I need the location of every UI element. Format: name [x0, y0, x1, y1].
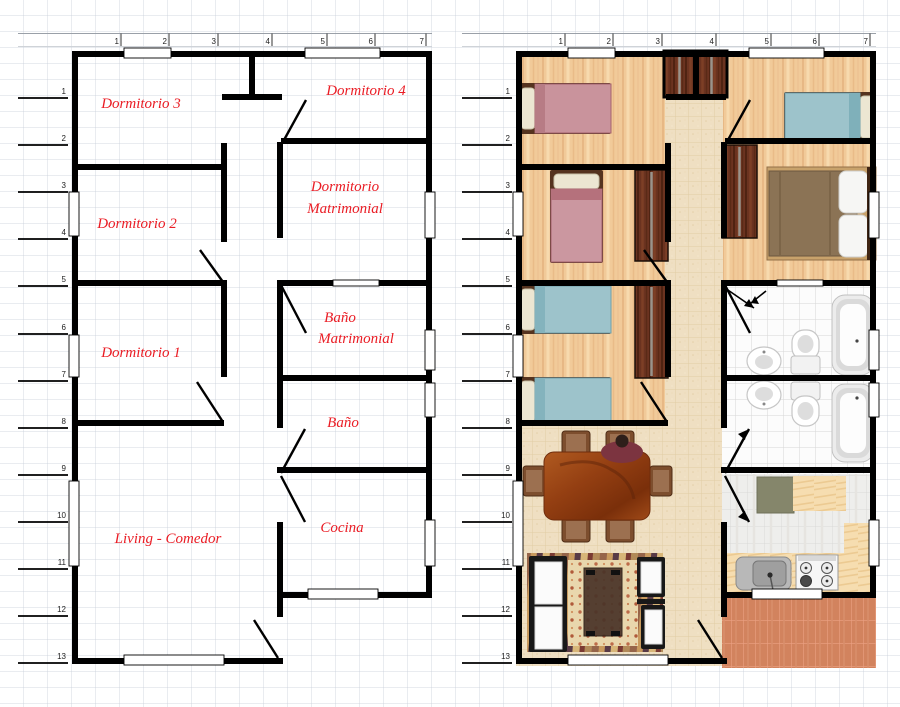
ruler-row-label: 7: [506, 370, 511, 379]
ruler-col-label: 2: [163, 37, 168, 46]
room-label-dormitorio-3: Dormitorio 3: [100, 96, 181, 112]
ruler-col-label: 1: [559, 37, 564, 46]
room-label-bano-matrimonial: Baño: [324, 310, 356, 326]
bathtub-icon: [832, 384, 874, 462]
window: [425, 520, 435, 566]
ruler-row-label: 9: [62, 464, 67, 473]
ruler-row-label: 1: [62, 87, 67, 96]
door-leaf: [197, 382, 223, 422]
door-leaf: [200, 250, 223, 282]
room-label-dormitorio-matrimonial: Matrimonial: [306, 201, 383, 217]
door-leaf: [282, 287, 306, 333]
ruler-row-label: 13: [57, 652, 66, 661]
ruler-col-label: 6: [369, 37, 374, 46]
ruler-row-label: 1: [506, 87, 511, 96]
ruler-col-label: 3: [212, 37, 217, 46]
wardrobe-icon: [722, 145, 757, 238]
ruler-row-label: 5: [62, 275, 67, 284]
ruler-row-label: 7: [62, 370, 67, 379]
ruler-row-label: 3: [506, 181, 511, 190]
kitchen-counter: [793, 476, 846, 511]
ruler-row-label: 11: [58, 558, 67, 567]
room-label-living-comedor: Living - Comedor: [114, 531, 222, 547]
door-leaf: [281, 476, 305, 522]
ruler-row-label: 5: [506, 275, 511, 284]
room-label-dormitorio-2: Dormitorio 2: [96, 216, 177, 232]
window: [69, 481, 79, 566]
ruler-col-label: 5: [765, 37, 770, 46]
left-plan-labels: Dormitorio 3 Dormitorio 4 Dormitorio 2 D…: [96, 83, 406, 547]
window: [69, 335, 79, 377]
single-bed-icon: [784, 92, 876, 143]
double-bed-icon: [767, 167, 876, 260]
wardrobe-icon: [635, 285, 668, 378]
wardrobe-icon: [635, 170, 668, 261]
ruler-row-label: 2: [506, 134, 511, 143]
hallway-tile-floor: [665, 97, 723, 427]
ruler-top-right-plan: 1 2 3 4 5 6 7: [462, 34, 876, 47]
ruler-row-label: 10: [501, 511, 510, 520]
ruler-col-label: 3: [656, 37, 661, 46]
ruler-row-label: 12: [57, 605, 66, 614]
ruler-col-label: 1: [115, 37, 120, 46]
ruler-top-left-plan: 1 2 3 4 5 6 7: [18, 34, 432, 47]
dining-chair-icon: [562, 431, 590, 455]
ruler-row-label: 3: [62, 181, 67, 190]
single-bed-icon: [518, 377, 611, 426]
room-label-bano: Baño: [327, 415, 359, 431]
bidet-icon: [747, 381, 781, 409]
ruler-row-label: 11: [502, 558, 511, 567]
ruler-row-label: 12: [501, 605, 510, 614]
dining-chair-icon: [523, 466, 545, 496]
room-label-dormitorio-1: Dormitorio 1: [100, 345, 181, 361]
patio-tiles: [722, 594, 876, 668]
armchair-icon: [637, 599, 665, 649]
door-leaf: [281, 429, 305, 473]
single-bed-icon: [518, 285, 611, 334]
ruler-row-label: 9: [506, 464, 511, 473]
dining-chair-icon: [562, 518, 590, 542]
ruler-side-ticks: [18, 98, 68, 663]
ruler-side-left-plan: 1 2 3 4 5 6 7 8 9 10 11 12 13: [18, 87, 68, 663]
coffee-table-icon: [584, 568, 622, 636]
dining-chair-icon: [650, 466, 672, 496]
door-leaf: [284, 100, 306, 140]
ruler-col-label: 7: [864, 37, 869, 46]
window: [69, 192, 79, 236]
window: [124, 655, 224, 665]
armchair-icon: [637, 557, 665, 597]
ruler-row-label: 10: [57, 511, 66, 520]
window: [308, 589, 378, 599]
ruler-side-right-plan: 1 2 3 4 5 6 7 8 9 10 11 12 13: [462, 87, 512, 663]
ruler-row-label: 13: [501, 652, 510, 661]
dining-table-icon: [544, 452, 650, 520]
ruler-col-label: 5: [321, 37, 326, 46]
ruler-row-label: 4: [506, 228, 511, 237]
window: [425, 192, 435, 238]
window: [305, 48, 380, 58]
single-bed-icon: [518, 83, 611, 134]
closet-icon: [664, 51, 695, 97]
window: [333, 280, 379, 286]
room-label-bano-matrimonial: Matrimonial: [317, 331, 394, 347]
ruler-col-label: 4: [710, 37, 715, 46]
single-bed-icon: [550, 170, 603, 263]
window: [124, 48, 171, 58]
sofa-icon: [529, 556, 567, 652]
bidet-icon: [747, 347, 781, 375]
toilet-icon: [791, 330, 820, 374]
door-leaf: [254, 620, 278, 658]
ruler-row-label: 4: [62, 228, 67, 237]
window: [425, 383, 435, 417]
ruler-row-label: 6: [506, 323, 511, 332]
room-label-dormitorio-matrimonial: Dormitorio: [310, 179, 380, 195]
dining-chair-icon: [606, 518, 634, 542]
ruler-col-label: 7: [420, 37, 425, 46]
kitchen-sink-icon: [736, 557, 791, 590]
ruler-col-label: 4: [266, 37, 271, 46]
floorplan-canvas: 1 2 3 4 5 6 7 1 2 3 4 5 6 7 1 2 3 4 5 6 …: [0, 0, 900, 707]
kitchen-mat: [757, 477, 794, 513]
stove-icon: [796, 555, 838, 590]
closet-icon: [696, 51, 727, 97]
ruler-row-label: 2: [62, 134, 67, 143]
ruler-col-label: 2: [607, 37, 612, 46]
room-label-cocina: Cocina: [320, 520, 363, 536]
ruler-row-label: 8: [62, 417, 67, 426]
ruler-row-label: 6: [62, 323, 67, 332]
ruler-row-label: 8: [506, 417, 511, 426]
room-label-dormitorio-4: Dormitorio 4: [325, 83, 406, 99]
ruler-col-label: 6: [813, 37, 818, 46]
window: [425, 330, 435, 370]
toilet-icon: [791, 382, 820, 426]
bathtub-icon: [832, 295, 874, 375]
